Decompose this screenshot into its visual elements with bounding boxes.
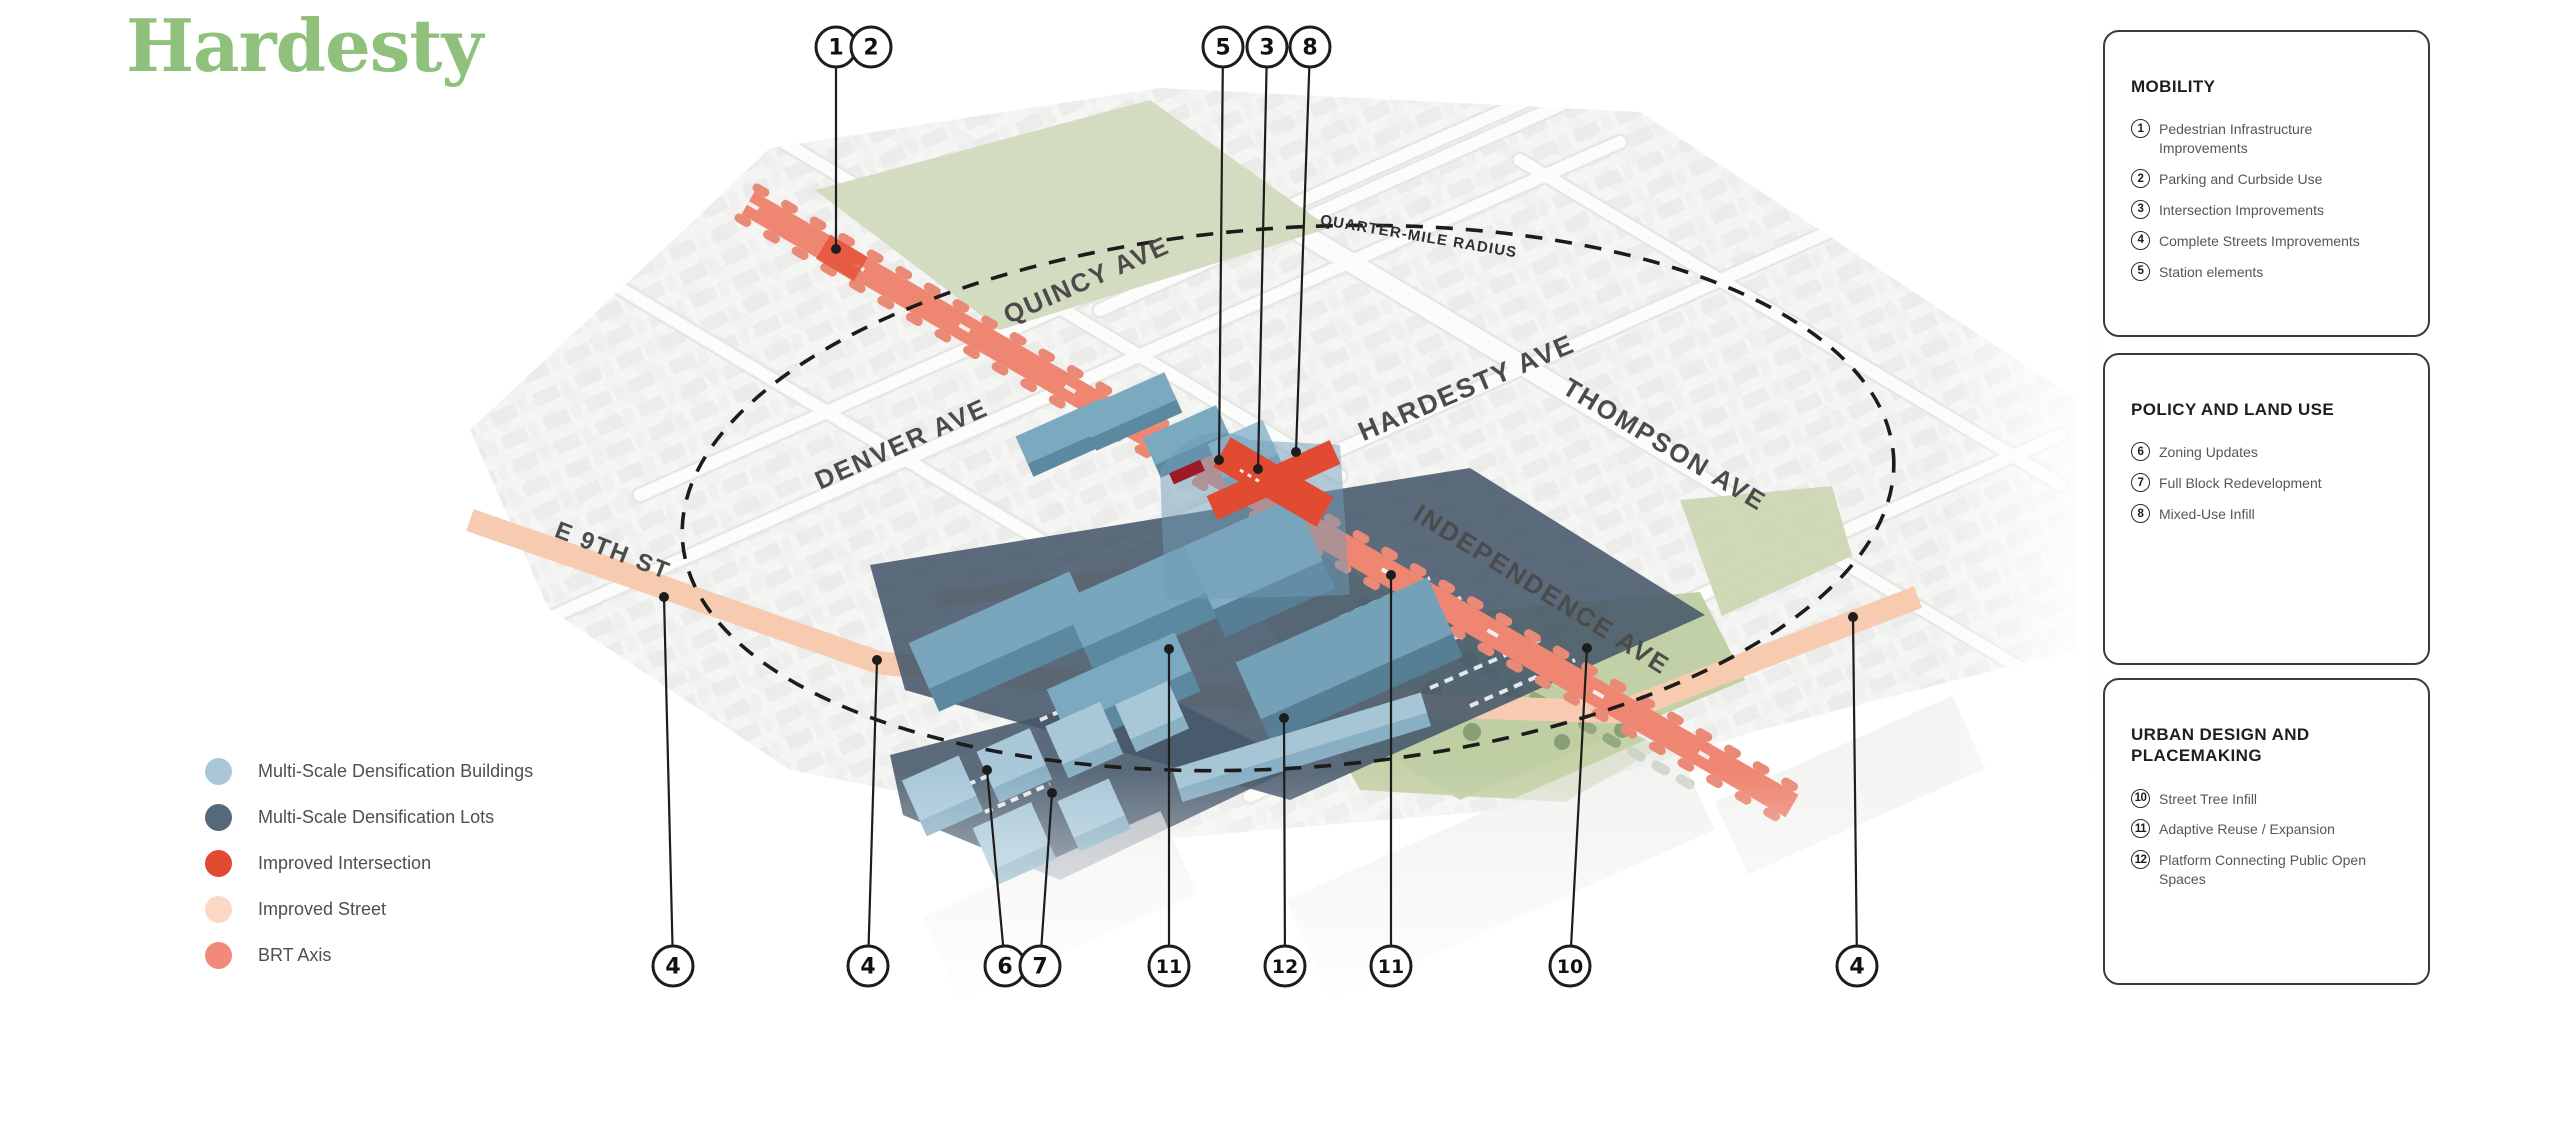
legend-label: Improved Intersection: [258, 853, 431, 874]
leader-dot: [1253, 464, 1263, 474]
leader-dot: [1279, 713, 1289, 723]
panel-mobility: MOBILITY 1Pedestrian Infrastructure Impr…: [2103, 30, 2430, 337]
item-number-badge: 3: [2131, 200, 2150, 219]
item-number-badge: 4: [2131, 231, 2150, 250]
item-label: Zoning Updates: [2159, 442, 2258, 462]
hardesty-plan-page: QUINCY AVE DENVER AVE HARDESTY AVE THOMP…: [0, 0, 2560, 1122]
legend-label: Multi-Scale Densification Buildings: [258, 761, 533, 782]
legend-color-dot: [205, 804, 232, 831]
callout-number: 4: [860, 955, 875, 980]
item-label: Adaptive Reuse / Expansion: [2159, 819, 2335, 839]
item-label: Full Block Redevelopment: [2159, 473, 2322, 493]
leader-dot: [1164, 644, 1174, 654]
item-number-badge: 8: [2131, 504, 2150, 523]
callout-number: 1: [828, 36, 843, 61]
panel-title: MOBILITY: [2131, 76, 2402, 97]
callout-number: 5: [1215, 36, 1230, 61]
legend-label: BRT Axis: [258, 945, 331, 966]
leader-line: [1284, 718, 1285, 966]
legend-color-dot: [205, 942, 232, 969]
item-number-badge: 5: [2131, 262, 2150, 281]
callout-number: 4: [1849, 955, 1864, 980]
panel-policy-land-use: POLICY AND LAND USE 6Zoning Updates7Full…: [2103, 353, 2430, 665]
panel-item: 11Adaptive Reuse / Expansion: [2131, 819, 2402, 839]
legend-color-dot: [205, 758, 232, 785]
item-label: Pedestrian Infrastructure Improvements: [2159, 119, 2402, 158]
leader-dot: [1047, 788, 1057, 798]
panel-item: 10Street Tree Infill: [2131, 789, 2402, 809]
legend-label: Multi-Scale Densification Lots: [258, 807, 494, 828]
item-number-badge: 12: [2131, 850, 2150, 869]
leader-dot: [982, 765, 992, 775]
callout-number: 2: [863, 36, 878, 61]
leader-dot: [659, 592, 669, 602]
callout-number: 6: [997, 955, 1012, 980]
legend-color-dot: [205, 850, 232, 877]
item-label: Mixed-Use Infill: [2159, 504, 2255, 524]
item-number-badge: 10: [2131, 789, 2150, 808]
legend-row: BRT Axis: [205, 932, 533, 978]
leader-dot: [1291, 447, 1301, 457]
panel-title: URBAN DESIGN AND PLACEMAKING: [2131, 724, 2402, 767]
map-legend: Multi-Scale Densification BuildingsMulti…: [205, 748, 533, 978]
callout-number: 12: [1272, 956, 1298, 978]
item-number-badge: 1: [2131, 119, 2150, 138]
panel-item: 4Complete Streets Improvements: [2131, 231, 2402, 251]
panel-item: 2Parking and Curbside Use: [2131, 169, 2402, 189]
callout-number: 11: [1156, 956, 1182, 978]
item-number-badge: 2: [2131, 169, 2150, 188]
panel-item: 7Full Block Redevelopment: [2131, 473, 2402, 493]
item-number-badge: 7: [2131, 473, 2150, 492]
callout-number: 7: [1032, 955, 1047, 980]
item-label: Parking and Curbside Use: [2159, 169, 2322, 189]
callout-number: 8: [1302, 36, 1317, 61]
item-label: Street Tree Infill: [2159, 789, 2257, 809]
panel-title: POLICY AND LAND USE: [2131, 399, 2402, 420]
leader-dot: [831, 244, 841, 254]
legend-row: Multi-Scale Densification Lots: [205, 794, 533, 840]
panel-urban-design: URBAN DESIGN AND PLACEMAKING 10Street Tr…: [2103, 678, 2430, 985]
leader-dot: [1848, 612, 1858, 622]
callout-number: 4: [665, 955, 680, 980]
callout-number: 3: [1259, 36, 1274, 61]
page-title: Hardesty: [126, 6, 482, 85]
item-number-badge: 11: [2131, 819, 2150, 838]
panel-item: 6Zoning Updates: [2131, 442, 2402, 462]
legend-row: Multi-Scale Densification Buildings: [205, 748, 533, 794]
legend-label: Improved Street: [258, 899, 386, 920]
item-label: Intersection Improvements: [2159, 200, 2324, 220]
legend-row: Improved Street: [205, 886, 533, 932]
right-fade: [1930, 80, 2100, 780]
callout-number: 11: [1378, 956, 1404, 978]
item-label: Platform Connecting Public Open Spaces: [2159, 850, 2402, 889]
leader-dot: [1386, 570, 1396, 580]
panel-item: 8Mixed-Use Infill: [2131, 504, 2402, 524]
item-number-badge: 6: [2131, 442, 2150, 461]
bottom-fade: [380, 760, 2140, 1022]
panel-item: 5Station elements: [2131, 262, 2402, 282]
leader-dot: [1582, 643, 1592, 653]
callout-number: 10: [1557, 956, 1583, 978]
leader-dot: [1214, 455, 1224, 465]
leader-dot: [872, 655, 882, 665]
legend-color-dot: [205, 896, 232, 923]
legend-row: Improved Intersection: [205, 840, 533, 886]
item-label: Complete Streets Improvements: [2159, 231, 2360, 251]
item-label: Station elements: [2159, 262, 2263, 282]
panel-item: 1Pedestrian Infrastructure Improvements: [2131, 119, 2402, 158]
panel-item: 12Platform Connecting Public Open Spaces: [2131, 850, 2402, 889]
panel-item: 3Intersection Improvements: [2131, 200, 2402, 220]
